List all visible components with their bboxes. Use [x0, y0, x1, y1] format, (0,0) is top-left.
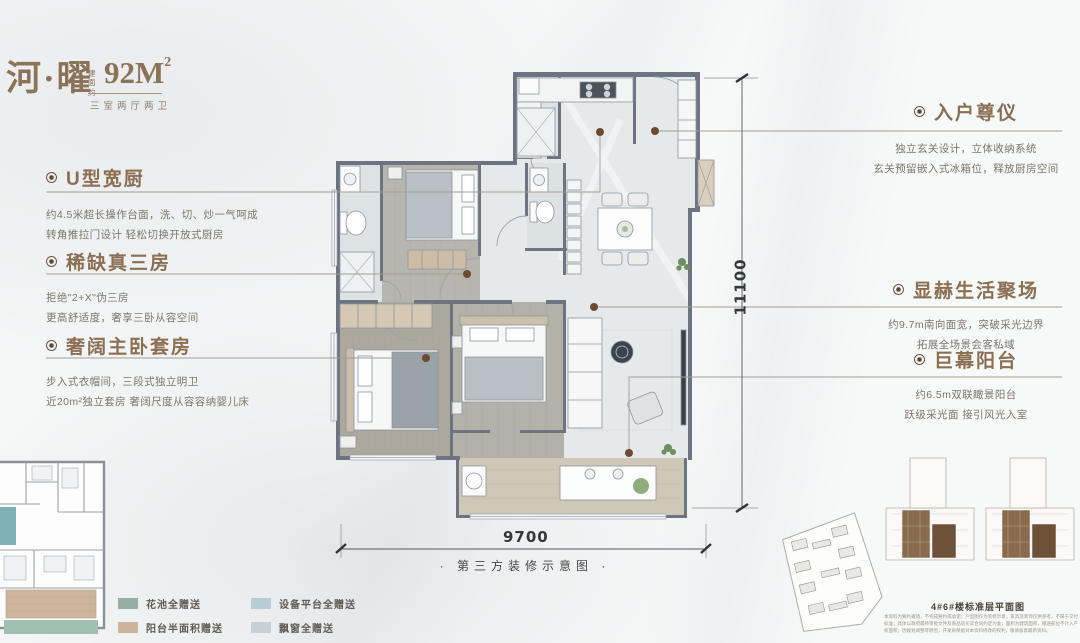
standard-floor-caption: 4#6#楼标准层平面图	[878, 600, 1078, 613]
annotation-title: 奢阔主卧套房	[66, 332, 192, 359]
legend-label: 阳台半面积赠送	[146, 620, 223, 635]
tv-icon	[681, 330, 686, 425]
annotation-line: 拒绝"2+X"伪三房	[46, 288, 199, 308]
annotation-title: 巨幕阳台	[934, 346, 1018, 373]
annotation-line: 步入式衣帽间，三段式独立明卫	[46, 372, 249, 392]
legend-swatch-balcony	[118, 622, 138, 633]
bullet-icon	[46, 340, 57, 351]
area-value: 92M	[104, 57, 164, 88]
annotation-title: 显赫生活聚场	[913, 276, 1039, 303]
stove-icon	[580, 82, 616, 98]
layout-subtitle: 三室两厅两卫	[90, 98, 171, 112]
annotation-title: U型宽厨	[66, 164, 145, 191]
bullet-icon	[46, 256, 57, 267]
annotation-entry: 入户尊仪 独立玄关设计，立体收纳系统 玄关预留嵌入式冰箱位，释放厨房空间	[860, 98, 1072, 180]
bed-icon	[452, 316, 548, 414]
annotation-master-suite: 奢阔主卧套房 步入式衣帽间，三段式独立明卫 近20m²独立套房 奢阔尺度从容容纳…	[46, 332, 249, 413]
legend-item: 设备平台全赠送	[251, 596, 356, 611]
legend-swatch-bay-window	[251, 622, 271, 633]
annotation-line: 跃级采光面 接引风光入室	[860, 405, 1072, 425]
annotation-line: 独立玄关设计，立体收纳系统	[860, 139, 1072, 159]
width-dimension-label: 9700	[503, 528, 547, 546]
coffee-table-icon	[611, 341, 633, 363]
floorplan-poster: 河·曜 建面约 92M 2 三室两厅两卫 U型宽厨 约4.5米超长操作台面，洗、…	[0, 0, 1080, 643]
area-superscript: 2	[164, 55, 171, 71]
annotation-line: 玄关预留嵌入式冰箱位，释放厨房空间	[860, 159, 1072, 179]
giveaway-legend: 花池全赠送 阳台半面积赠送 设备平台全赠送 飘窗全赠送	[118, 593, 356, 637]
annotation-line: 转角推拉门设计 轻松切换开放式厨房	[46, 225, 258, 245]
fine-print-disclaimer: 本资料为要约邀请，不构成要约或承诺；户型图仅为装修示意，家具及装饰仅供参考，不属…	[884, 613, 1078, 635]
area-block: 建面约 92M 2	[88, 57, 171, 97]
giveaway-thumbnail-plan	[0, 452, 115, 642]
bullet-icon	[914, 354, 925, 365]
standard-floor-drawing	[882, 438, 1080, 598]
area-underline	[88, 93, 162, 94]
annotation-line: 约9.7m南向面宽，突破采光边界	[860, 315, 1072, 335]
flower-pool-zone	[0, 507, 16, 545]
legend-label: 飘窗全赠送	[279, 620, 334, 635]
entry-cabinet-icon	[678, 80, 696, 158]
annotation-line: 约4.5米超长操作台面，洗、切、炒一气呵成	[46, 205, 258, 225]
legend-item: 花池全赠送	[118, 596, 223, 611]
annotation-title: 稀缺真三房	[66, 248, 171, 275]
bullet-icon	[46, 172, 57, 183]
legend-swatch-flower-pool	[118, 598, 138, 609]
legend-item: 阳台半面积赠送	[118, 620, 223, 635]
project-title: 河·曜	[6, 50, 94, 101]
annotation-line: 更高舒适度，奢享三卧从容空间	[46, 308, 199, 328]
garden-giveaway-zone	[4, 620, 98, 634]
bullet-icon	[914, 106, 925, 117]
annotation-living: 显赫生活聚场 约9.7m南向面宽，突破采光边界 拓展全场景会客私域	[860, 276, 1072, 356]
master-bed-icon	[340, 304, 438, 448]
legend-label: 花池全赠送	[146, 596, 201, 611]
height-dimension-label: 11100	[732, 258, 750, 315]
plan-disclaimer-note: · 第三方装修示意图 ·	[400, 557, 650, 574]
annotation-line: 近20m²独立套房 奢阔尺度从容容纳婴儿床	[46, 392, 249, 412]
annotation-line: 约6.5m双联瞰景阳台	[860, 385, 1072, 405]
annotation-title: 入户尊仪	[934, 98, 1018, 125]
legend-label: 设备平台全赠送	[279, 596, 356, 611]
legend-swatch-equipment-platform	[251, 598, 271, 609]
legend-item: 飘窗全赠送	[251, 620, 356, 635]
floor-plan	[328, 60, 716, 525]
annotation-balcony: 巨幕阳台 约6.5m双联瞰景阳台 跃级采光面 接引风光入室	[860, 346, 1072, 426]
bullet-icon	[893, 284, 904, 295]
annotation-three-rooms: 稀缺真三房 拒绝"2+X"伪三房 更高舒适度，奢享三卧从容空间	[46, 248, 199, 329]
site-plan-mini	[778, 512, 883, 640]
equipment-platform	[698, 160, 714, 206]
annotation-kitchen: U型宽厨 约4.5米超长操作台面，洗、切、炒一气呵成 转角推拉门设计 轻松切换开…	[46, 164, 258, 246]
